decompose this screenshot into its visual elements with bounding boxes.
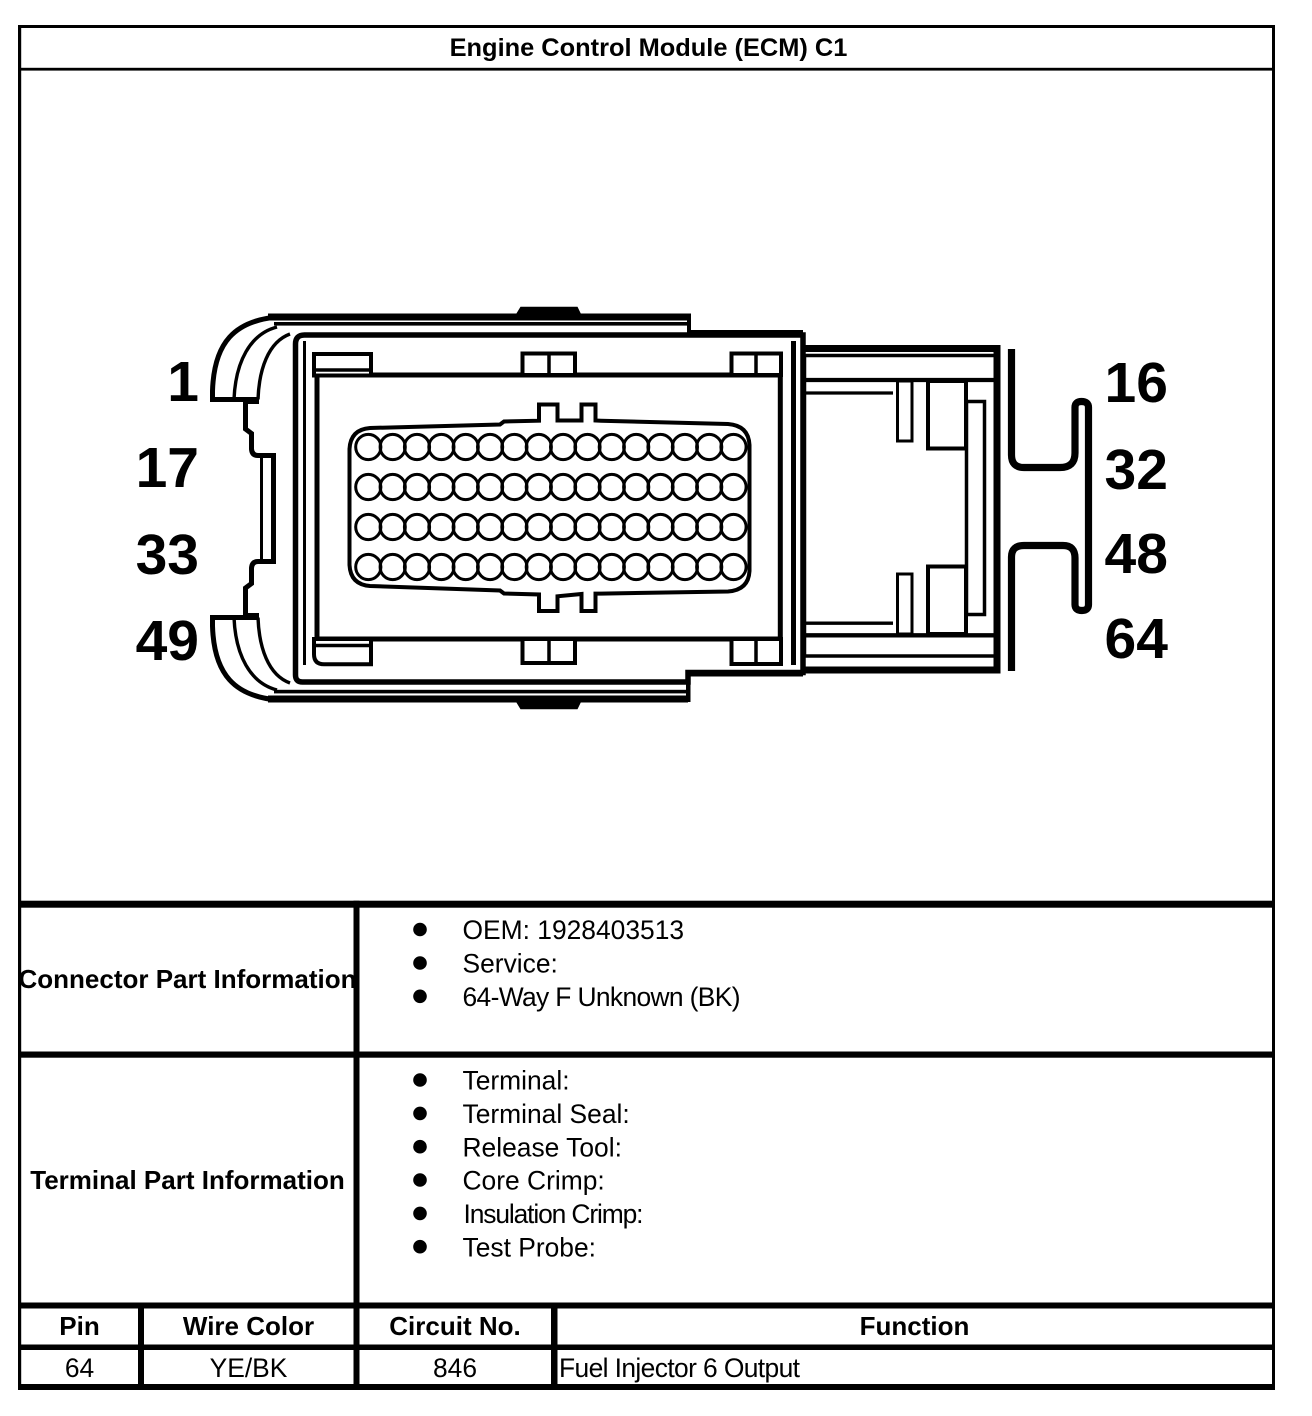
svg-text:Test Probe:: Test Probe: <box>463 1232 597 1262</box>
svg-text:Fuel Injector 6 Output: Fuel Injector 6 Output <box>559 1353 801 1383</box>
svg-text:Service:: Service: <box>463 948 558 978</box>
svg-text:64: 64 <box>65 1353 94 1383</box>
svg-text:33: 33 <box>136 523 199 587</box>
svg-text:Terminal Part Information: Terminal Part Information <box>30 1165 344 1195</box>
svg-text:Circuit No.: Circuit No. <box>389 1311 520 1341</box>
svg-text:846: 846 <box>433 1353 477 1383</box>
svg-text:Pin: Pin <box>59 1311 99 1341</box>
svg-text:Engine Control Module (ECM) C1: Engine Control Module (ECM) C1 <box>450 34 848 62</box>
svg-text:Terminal:: Terminal: <box>463 1066 570 1096</box>
svg-text:Release Tool:: Release Tool: <box>463 1132 622 1162</box>
svg-text:YE/BK: YE/BK <box>210 1353 288 1383</box>
svg-text:Function: Function <box>860 1311 970 1341</box>
svg-text:17: 17 <box>136 436 199 500</box>
svg-text:Connector Part Information: Connector Part Information <box>18 964 356 994</box>
svg-text:64: 64 <box>1105 607 1169 671</box>
svg-text:Core Crimp:: Core Crimp: <box>463 1166 605 1196</box>
svg-text:32: 32 <box>1105 438 1168 502</box>
svg-text:OEM: 1928403513: OEM: 1928403513 <box>463 915 685 945</box>
svg-text:48: 48 <box>1105 522 1168 586</box>
svg-text:Terminal Seal:: Terminal Seal: <box>463 1099 630 1129</box>
svg-text:16: 16 <box>1105 351 1168 415</box>
svg-text:1: 1 <box>167 350 199 414</box>
svg-text:Insulation Crimp:: Insulation Crimp: <box>464 1199 644 1229</box>
svg-text:64-Way F Unknown (BK): 64-Way F Unknown (BK) <box>463 982 741 1012</box>
svg-text:49: 49 <box>136 609 199 673</box>
svg-text:Wire Color: Wire Color <box>183 1311 314 1341</box>
